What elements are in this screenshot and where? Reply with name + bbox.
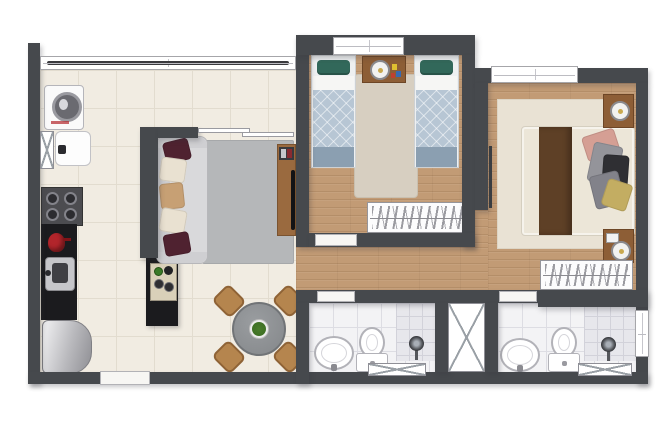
tub-faucet-icon	[58, 145, 66, 154]
basin-inner	[507, 345, 533, 365]
kitchen-divider-wall	[140, 127, 158, 258]
foot-band	[313, 147, 354, 167]
tv-screen	[291, 170, 295, 230]
master-bedroom-window	[491, 66, 578, 83]
hallway-floor	[296, 247, 488, 290]
sheet-fold	[313, 76, 354, 91]
bed-runner	[539, 127, 572, 235]
sliding-balcony-door	[198, 128, 294, 138]
burner-icon	[64, 192, 77, 205]
burner-icon	[46, 192, 59, 205]
plant-leaves-icon	[252, 322, 266, 336]
lamp-icon	[370, 60, 390, 80]
master-wardrobe	[540, 260, 633, 290]
master-bottom-wall	[538, 290, 648, 307]
lamp-icon	[610, 101, 630, 121]
toy-yellow	[392, 64, 397, 70]
toy-blue	[396, 71, 401, 77]
kitchen-countertop	[41, 224, 77, 320]
bowl-inner	[366, 334, 378, 351]
single-bed-left	[311, 55, 356, 168]
cup-icon	[154, 279, 164, 289]
washer-door-icon	[52, 92, 82, 122]
tv-stand	[277, 144, 296, 236]
teal-pillow	[317, 60, 350, 75]
green-item-icon	[154, 267, 163, 276]
quilted-duvet	[416, 90, 457, 147]
laundry-tub	[55, 131, 91, 166]
twin-nightstand	[362, 56, 406, 83]
twin-bedroom-rug	[354, 74, 418, 198]
bath2-vent-xbox	[578, 363, 632, 376]
sheet-fold	[416, 76, 457, 91]
decor-books	[287, 149, 292, 158]
sink-faucet-icon	[45, 270, 51, 276]
throw-pillow-maroon	[162, 231, 191, 257]
cup-icon	[164, 282, 174, 292]
toy-red	[391, 73, 395, 78]
throw-pillow-cream	[158, 156, 187, 183]
flush-button	[562, 361, 567, 366]
quilted-duvet	[313, 90, 354, 147]
master-doorway-floor	[475, 210, 488, 247]
washing-machine	[44, 85, 84, 130]
kettle-handle	[63, 238, 71, 241]
wardrobe-rail	[543, 275, 630, 276]
balcony-wall-stub	[158, 127, 198, 138]
bath2-shower-head-icon	[601, 337, 616, 352]
twin-wardrobe	[367, 202, 468, 233]
master-nightstand-lower	[603, 229, 634, 263]
service-shaft-xbox	[448, 303, 485, 372]
master-nightstand-upper	[603, 94, 634, 128]
bowl-inner	[558, 334, 570, 351]
wardrobe-rail	[370, 218, 465, 219]
island-tray	[150, 263, 177, 301]
balcony-glass-railing	[40, 56, 296, 70]
twin-bedroom-door	[315, 234, 357, 246]
shaft-right-wall	[485, 303, 498, 372]
bath2-door	[499, 291, 537, 302]
washer-controls	[51, 121, 69, 124]
red-kettle	[48, 233, 65, 252]
cooktop-stove	[41, 187, 83, 226]
bath1-shower-head-icon	[409, 336, 424, 351]
burner-icon	[64, 208, 77, 221]
coffee-machine-icon	[164, 266, 173, 275]
single-bed-right	[414, 55, 459, 168]
double-bed	[521, 126, 635, 236]
foot-band	[416, 147, 457, 167]
sink-bowl	[52, 263, 68, 283]
twin-bedroom-window	[333, 37, 404, 55]
bath2-window	[635, 310, 649, 357]
tv-decor	[279, 147, 294, 160]
bath1-vent-xbox	[368, 363, 426, 376]
teal-pillow	[420, 60, 453, 75]
island-counter	[146, 256, 178, 326]
glass-line	[47, 61, 289, 65]
bath2-faucet-icon	[517, 365, 523, 372]
burner-icon	[46, 208, 59, 221]
refrigerator	[42, 320, 92, 374]
left-exterior-wall	[28, 43, 40, 384]
sliding-panel	[242, 132, 294, 137]
bath2-toilet-tank	[548, 353, 580, 372]
washer-door-glass	[59, 99, 68, 110]
basin-inner	[321, 343, 347, 363]
laundry-duct-xbox	[40, 131, 54, 169]
lamp-icon	[611, 241, 631, 261]
throw-pillow-tan	[159, 182, 186, 210]
bath1-door	[317, 291, 355, 302]
table-plant-centerpiece	[249, 319, 269, 339]
bath1-faucet-icon	[331, 364, 337, 371]
master-door-leaf	[489, 146, 492, 208]
kitchen-sink	[45, 257, 75, 291]
floor-plan	[0, 0, 670, 421]
shower-area-bath2	[584, 303, 636, 361]
twin-right-wall	[462, 55, 475, 247]
bath1-left-wall	[296, 303, 309, 384]
master-left-wall	[475, 83, 488, 210]
decor-books	[281, 149, 286, 158]
twin-left-wall	[296, 35, 309, 247]
shaft-left-wall	[435, 303, 448, 372]
entry-door-opening	[100, 371, 150, 385]
